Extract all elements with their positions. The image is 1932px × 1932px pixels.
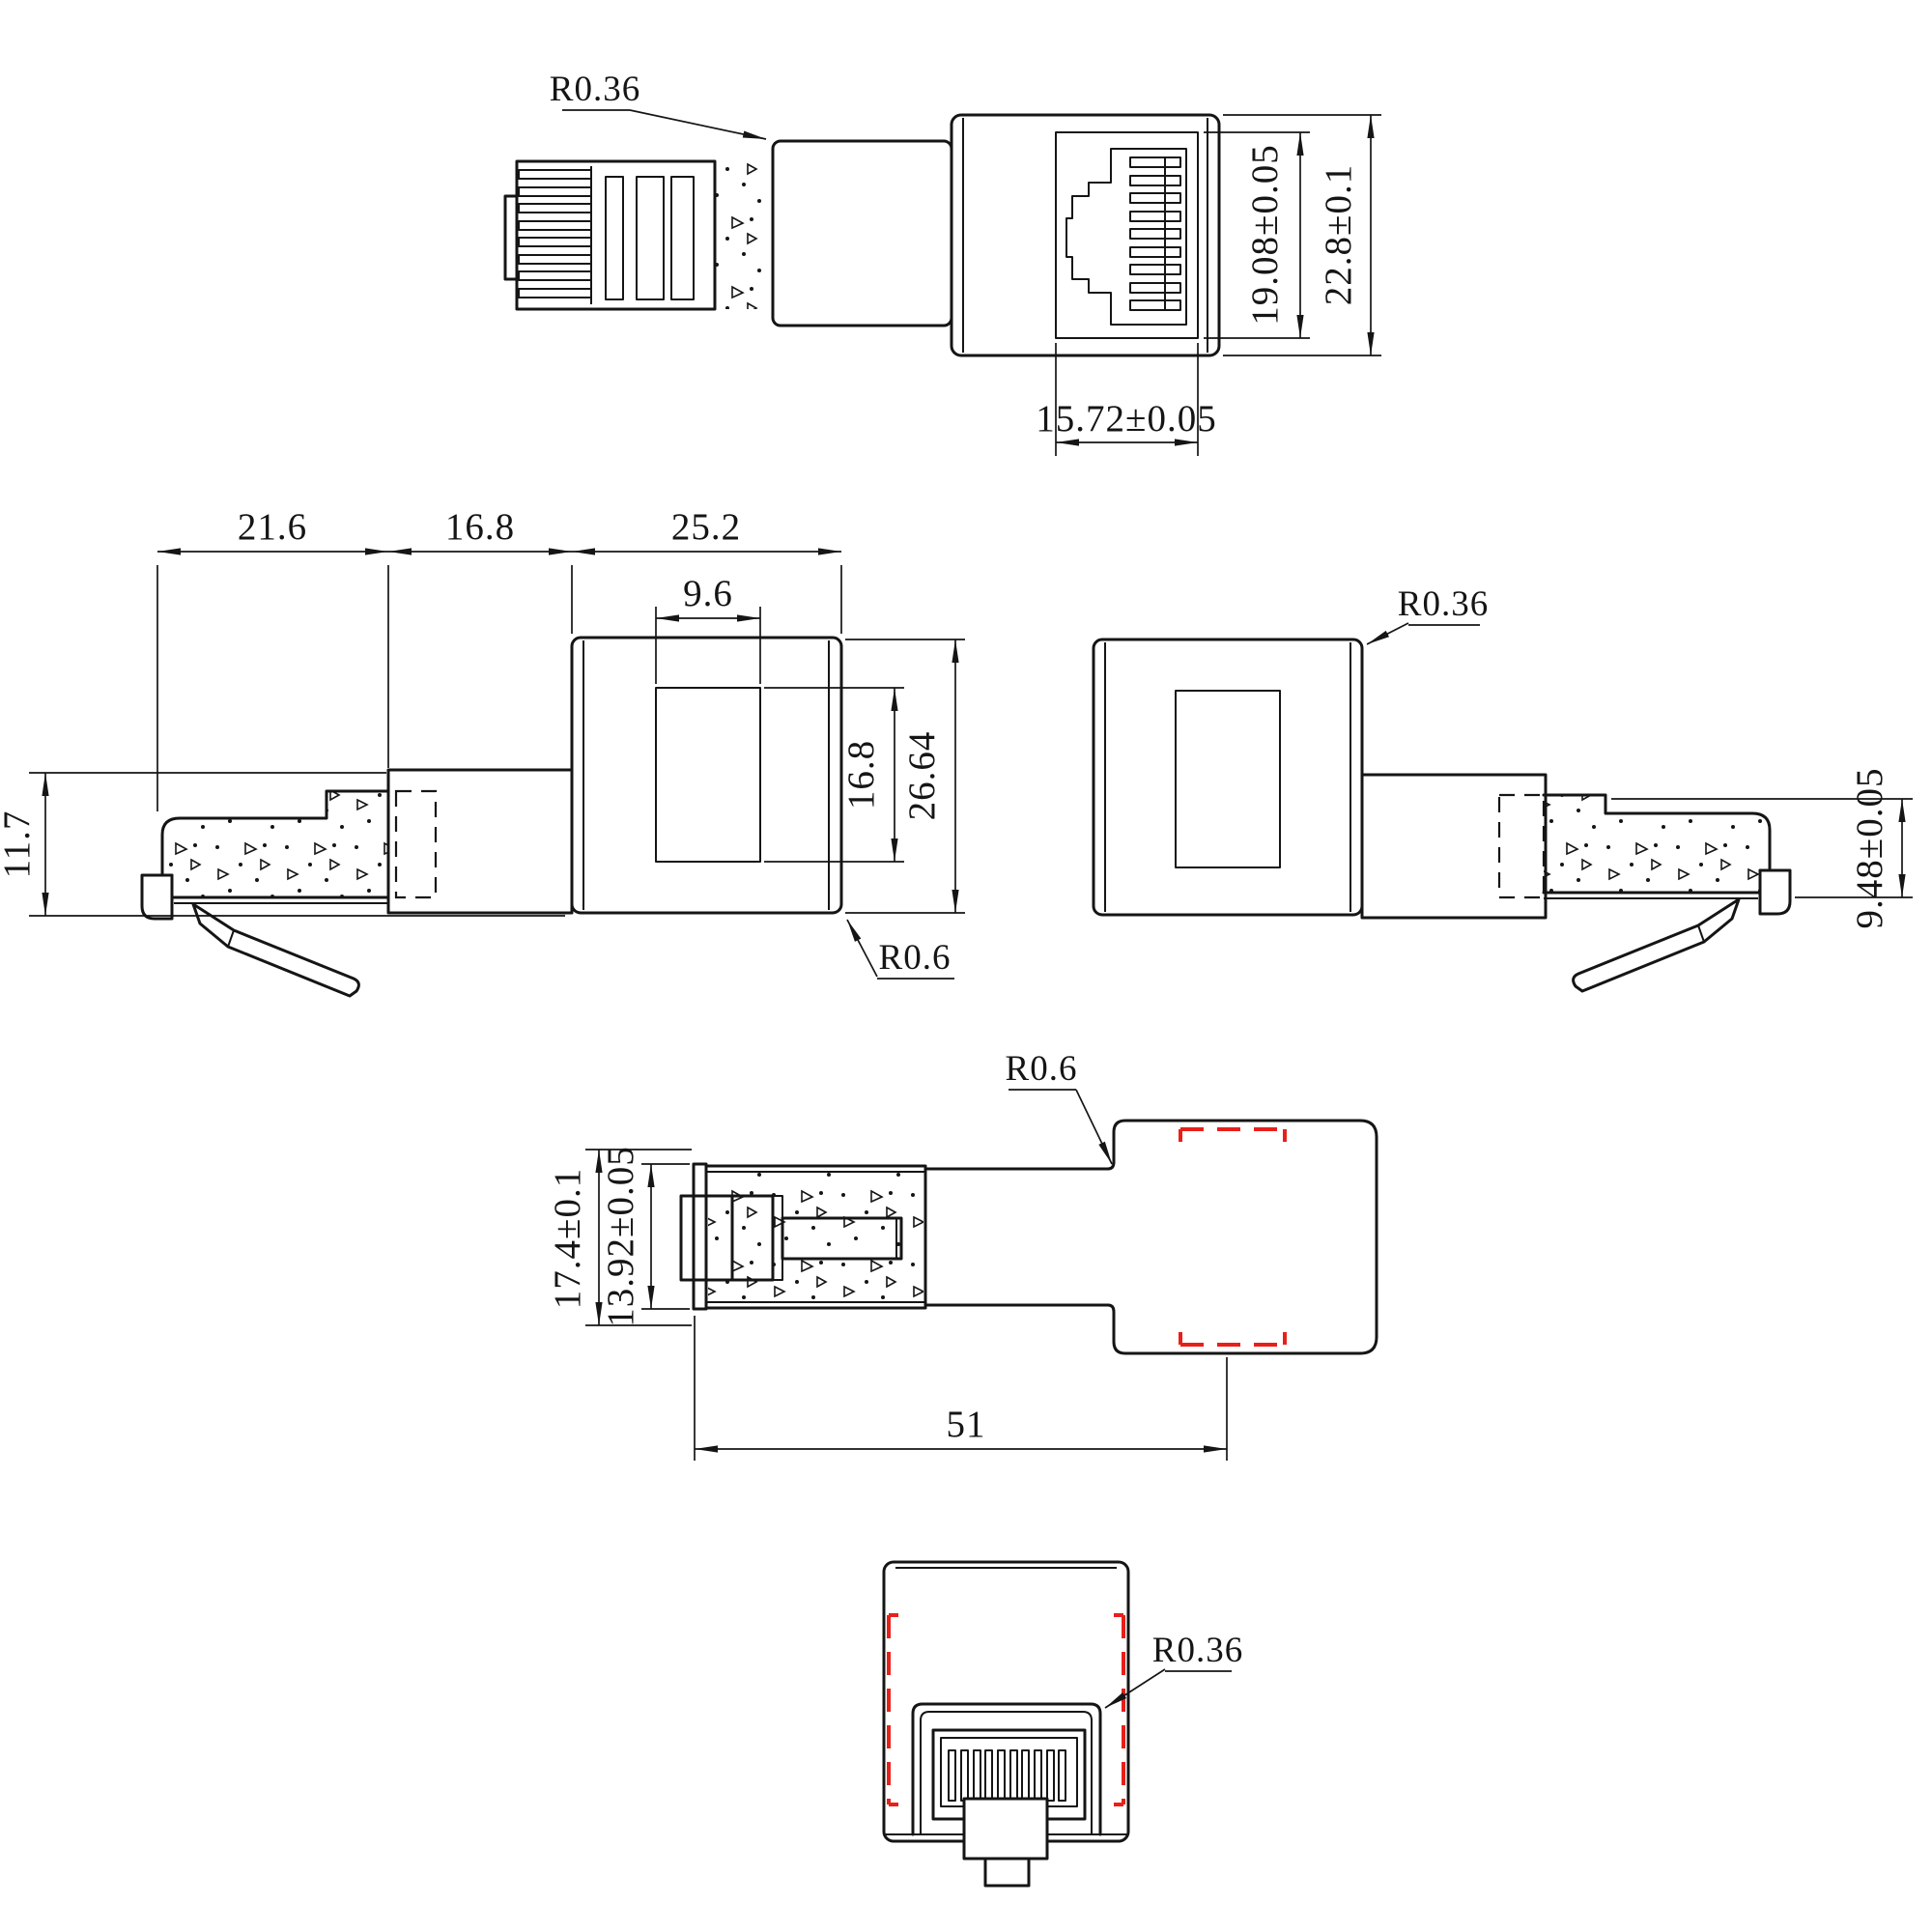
latch-tab-narrow — [985, 1859, 1029, 1886]
front-assembly-view: R0.36 19.08±0.05 22.8±0.1 15.72±0.05 — [505, 70, 1381, 456]
svg-text:16.8: 16.8 — [840, 740, 882, 810]
rear-view: R0.36 — [884, 1562, 1243, 1886]
svg-text:51: 51 — [947, 1404, 986, 1445]
adapter-body-plan — [1108, 1121, 1377, 1353]
plug-latch — [193, 904, 358, 996]
svg-text:13.92±0.05: 13.92±0.05 — [600, 1146, 641, 1326]
svg-text:11.7: 11.7 — [0, 810, 38, 879]
body-window — [656, 688, 760, 862]
svg-text:9.48±0.05: 9.48±0.05 — [1849, 768, 1890, 929]
hidden-side-walls — [889, 1615, 1123, 1804]
rj45-jack-face — [1056, 132, 1198, 338]
latch-tab-wide — [964, 1799, 1047, 1859]
rj45-plug-face-rear — [933, 1730, 1085, 1886]
adapter-neck-side — [388, 770, 572, 913]
plug-pin-slots — [949, 1750, 1065, 1801]
plug-nose-right — [1760, 870, 1790, 914]
svg-text:9.6: 9.6 — [683, 573, 733, 614]
hidden-plug-outline — [396, 791, 436, 897]
adapter-neck-side-right — [1362, 775, 1546, 918]
plug-nose-plan — [694, 1164, 706, 1309]
radius-label-plan: R0.6 — [1006, 1049, 1078, 1089]
side-view-left: 21.6 16.8 25.2 9.6 16.8 26.64 11.7 — [0, 506, 965, 996]
dim-jack-opening-width: 15.72±0.05 — [1036, 343, 1216, 456]
plug-latch-right — [1574, 899, 1739, 991]
adapter-neck-front — [773, 141, 952, 326]
drawing-canvas: R0.36 19.08±0.05 22.8±0.1 15.72±0.05 — [0, 0, 1932, 1932]
adapter-body-side — [572, 638, 841, 913]
adapter-body-side-right — [1094, 639, 1362, 915]
side-view-right: R0.36 9.48±0.05 — [1094, 584, 1913, 991]
adapter-body-front — [952, 115, 1219, 355]
plug-nose — [142, 875, 172, 919]
hidden-jack-depth-lines — [1180, 1129, 1285, 1345]
radius-label-side-right: R0.36 — [1398, 584, 1489, 624]
svg-text:26.64: 26.64 — [901, 731, 943, 821]
plug-boot-right — [1544, 795, 1770, 893]
dim-window-height: 16.8 — [764, 688, 904, 862]
svg-text:22.8±0.1: 22.8±0.1 — [1318, 164, 1359, 305]
plug-boot — [162, 791, 388, 897]
body-window-right — [1176, 691, 1280, 867]
radius-label-front: R0.36 — [550, 70, 640, 109]
plan-view: R0.6 17.4±0.1 13.92±0.05 51 — [547, 1049, 1377, 1461]
dim-chain-top: 21.6 16.8 25.2 — [157, 506, 841, 811]
svg-text:15.72±0.05: 15.72±0.05 — [1036, 398, 1216, 440]
dim-overall-length: 51 — [695, 1316, 1227, 1461]
svg-text:25.2: 25.2 — [671, 506, 741, 548]
svg-text:21.6: 21.6 — [238, 506, 307, 548]
svg-text:17.4±0.1: 17.4±0.1 — [547, 1168, 588, 1309]
hidden-plug-outline-right — [1499, 795, 1544, 897]
svg-text:16.8: 16.8 — [445, 506, 515, 548]
radius-label-side-left: R0.6 — [879, 938, 952, 978]
rj45-plug-side — [505, 161, 773, 309]
technical-drawing: R0.36 19.08±0.05 22.8±0.1 15.72±0.05 — [0, 0, 1932, 1932]
svg-text:19.08±0.05: 19.08±0.05 — [1244, 144, 1286, 325]
radius-label-rear: R0.36 — [1152, 1631, 1243, 1670]
jack-contact-bars — [1130, 157, 1180, 310]
dim-plug-height-plan: 13.92±0.05 — [600, 1146, 690, 1326]
dim-window-width: 9.6 — [656, 573, 760, 684]
plug-contact-bars — [519, 170, 591, 298]
